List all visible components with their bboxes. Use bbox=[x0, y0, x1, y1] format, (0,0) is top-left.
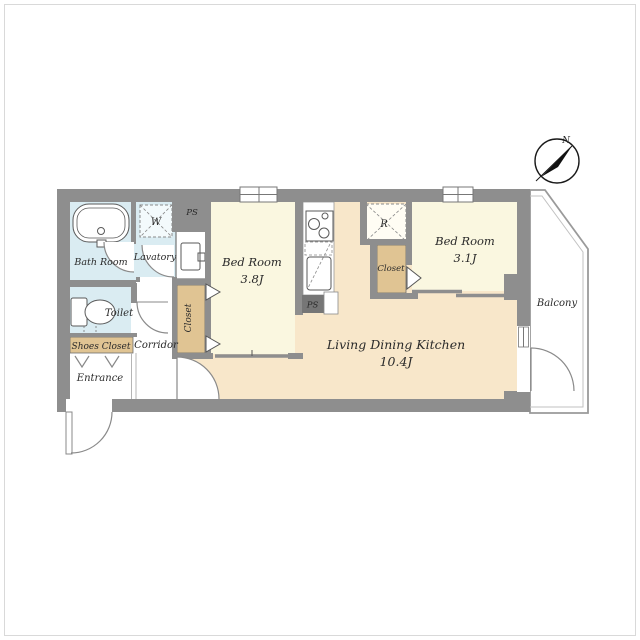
closet-east-label: Closet bbox=[377, 264, 405, 274]
bedroom-west-size: 3.8J bbox=[241, 272, 265, 286]
north-label: N bbox=[561, 136, 571, 146]
stove bbox=[306, 211, 333, 241]
wall-bottom bbox=[57, 399, 530, 412]
wall-ldk-corner-step bbox=[504, 391, 517, 400]
pipe-space-top-label: PS bbox=[185, 208, 198, 218]
wall-closet-east-bottom bbox=[370, 293, 418, 299]
toilet-label: Toilet bbox=[105, 308, 134, 319]
entrance-label: Entrance bbox=[76, 373, 124, 384]
pipe-space-kitchen: PS bbox=[302, 292, 338, 314]
corridor-label: Corridor bbox=[134, 340, 179, 351]
wall-bath-lavatory bbox=[131, 202, 136, 244]
wall-toilet-corridor bbox=[131, 283, 137, 303]
corridor-floor bbox=[131, 279, 177, 399]
window-bedroom-west bbox=[240, 187, 277, 202]
wall-bath-toilet bbox=[70, 280, 136, 287]
wall-bedroom-east-left-stub bbox=[406, 245, 412, 265]
shoes-closet-label: Shoes Closet bbox=[72, 342, 131, 352]
wall-left bbox=[57, 189, 70, 412]
bedroom-east-size: 3.1J bbox=[454, 251, 478, 265]
wall-fridge-bay-left bbox=[360, 202, 367, 242]
floor-plan-page: N bbox=[0, 0, 640, 640]
wall-fridge-closet-divider bbox=[360, 239, 412, 245]
bath-room-label: Bath Room bbox=[73, 257, 127, 268]
bedroom-east-label: Bed Room bbox=[434, 234, 495, 248]
floor-plan-svg: N bbox=[0, 0, 640, 640]
washing-machine-label: W bbox=[151, 217, 162, 228]
wall-bedroom-east-corner bbox=[504, 274, 517, 300]
wall-closet-west-top bbox=[172, 279, 210, 285]
ldk-size: 10.4J bbox=[380, 354, 414, 369]
wall-closet-east-left bbox=[370, 245, 377, 295]
wall-bedroom-west-bottom-stub bbox=[288, 353, 303, 359]
bedroom-west-label: Bed Room bbox=[221, 255, 282, 269]
closet-west-label: Closet bbox=[184, 303, 194, 332]
wall-kitchen bbox=[295, 202, 303, 315]
wall-bedroom-east-left bbox=[406, 202, 412, 246]
wall-toilet-shoes bbox=[68, 333, 137, 337]
refrigerator-label: R bbox=[379, 219, 388, 230]
pipe-space-kitchen-label: PS bbox=[306, 301, 319, 311]
wash-basin bbox=[176, 230, 206, 279]
ldk-label: Living Dining Kitchen bbox=[326, 337, 465, 352]
lavatory-label: Lavatory bbox=[133, 252, 177, 263]
balcony-label: Balcony bbox=[536, 298, 578, 309]
window-bedroom-east bbox=[443, 187, 473, 202]
bathtub bbox=[73, 204, 129, 247]
